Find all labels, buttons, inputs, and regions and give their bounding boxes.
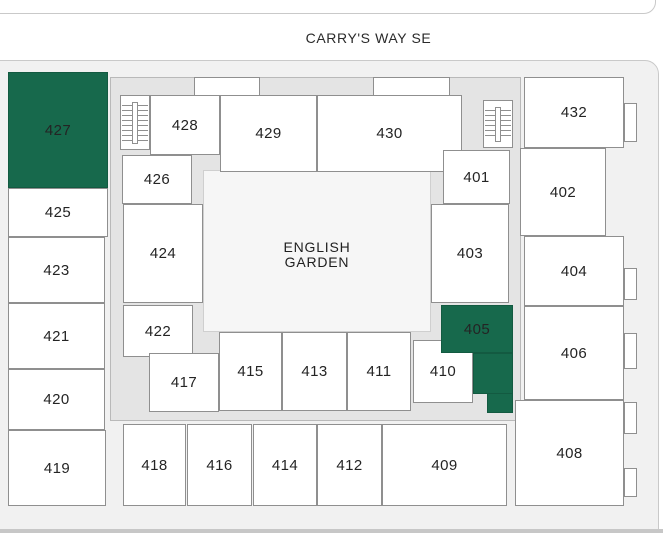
unit-422[interactable]: 422 <box>123 305 193 357</box>
unit-405-part1[interactable] <box>473 353 513 394</box>
roofline-notch-right <box>373 77 450 96</box>
unit-404[interactable]: 404 <box>524 236 624 306</box>
unit-label: 428 <box>172 117 198 134</box>
unit-414[interactable]: 414 <box>253 424 317 506</box>
unit-401[interactable]: 401 <box>443 150 510 204</box>
unit-label: 418 <box>141 457 167 474</box>
unit-label: 424 <box>150 245 176 262</box>
entry-tab-404 <box>624 268 637 300</box>
unit-label: 415 <box>237 363 263 380</box>
unit-428[interactable]: 428 <box>150 95 220 155</box>
unit-425[interactable]: 425 <box>8 188 108 237</box>
unit-413[interactable]: 413 <box>282 332 347 411</box>
unit-label: 403 <box>457 245 483 262</box>
unit-423[interactable]: 423 <box>8 237 105 303</box>
unit-424[interactable]: 424 <box>123 204 203 303</box>
unit-label: 420 <box>43 391 69 408</box>
unit-label: 425 <box>45 204 71 221</box>
unit-419[interactable]: 419 <box>8 430 106 506</box>
unit-label: 412 <box>336 457 362 474</box>
unit-label: 416 <box>206 457 232 474</box>
unit-427[interactable]: 427 <box>8 72 108 188</box>
unit-432[interactable]: 432 <box>524 77 624 148</box>
unit-420[interactable]: 420 <box>8 369 105 430</box>
unit-416[interactable]: 416 <box>187 424 252 506</box>
site-map: ENGLISH GARDEN 4274254234214204194284264… <box>0 0 663 533</box>
unit-429[interactable]: 429 <box>220 95 317 172</box>
unit-label: 421 <box>43 328 69 345</box>
stair-rail-icon <box>132 102 138 144</box>
stair-rail-icon <box>495 107 501 142</box>
entry-tab-408-lower <box>624 468 637 497</box>
unit-402[interactable]: 402 <box>520 148 606 236</box>
roofline-notch-left <box>194 77 260 96</box>
site-plan-screen: CARRY'S WAY SE ENGLISH GARDEN 4274254234… <box>0 0 663 533</box>
courtyard-label: ENGLISH GARDEN <box>203 240 431 270</box>
entry-tab-406 <box>624 333 637 369</box>
unit-label: 429 <box>255 125 281 142</box>
unit-418[interactable]: 418 <box>123 424 186 506</box>
unit-408[interactable]: 408 <box>515 400 624 506</box>
unit-label: 432 <box>561 104 587 121</box>
unit-label: 413 <box>301 363 327 380</box>
unit-409[interactable]: 409 <box>382 424 507 506</box>
unit-label: 405 <box>464 321 490 338</box>
entry-tab-432 <box>624 103 637 142</box>
unit-label: 423 <box>43 262 69 279</box>
unit-label: 422 <box>145 323 171 340</box>
unit-label: 408 <box>556 445 582 462</box>
unit-403[interactable]: 403 <box>431 204 509 303</box>
stairwell-left <box>120 95 150 150</box>
unit-label: 417 <box>171 374 197 391</box>
unit-label: 427 <box>45 122 71 139</box>
unit-417[interactable]: 417 <box>149 353 219 412</box>
unit-412[interactable]: 412 <box>317 424 382 506</box>
unit-411[interactable]: 411 <box>347 332 411 411</box>
unit-label: 411 <box>366 363 391 380</box>
unit-405[interactable]: 405 <box>441 305 513 353</box>
unit-label: 419 <box>44 460 70 477</box>
unit-405-part2[interactable] <box>487 393 513 413</box>
courtyard-label-line2: GARDEN <box>285 254 350 270</box>
courtyard-label-line1: ENGLISH <box>283 239 350 255</box>
unit-label: 402 <box>550 184 576 201</box>
unit-label: 430 <box>376 125 402 142</box>
unit-label: 410 <box>430 363 456 380</box>
unit-label: 426 <box>144 171 170 188</box>
unit-label: 409 <box>431 457 457 474</box>
unit-label: 404 <box>561 263 587 280</box>
unit-label: 406 <box>561 345 587 362</box>
entry-tab-408-upper <box>624 402 637 434</box>
unit-430[interactable]: 430 <box>317 95 462 172</box>
unit-421[interactable]: 421 <box>8 303 105 369</box>
unit-426[interactable]: 426 <box>122 155 192 204</box>
unit-label: 401 <box>463 169 489 186</box>
bottom-bar-edge <box>0 529 663 533</box>
unit-406[interactable]: 406 <box>524 306 624 400</box>
unit-415[interactable]: 415 <box>219 332 282 411</box>
unit-label: 414 <box>272 457 298 474</box>
stairwell-right <box>483 100 513 148</box>
